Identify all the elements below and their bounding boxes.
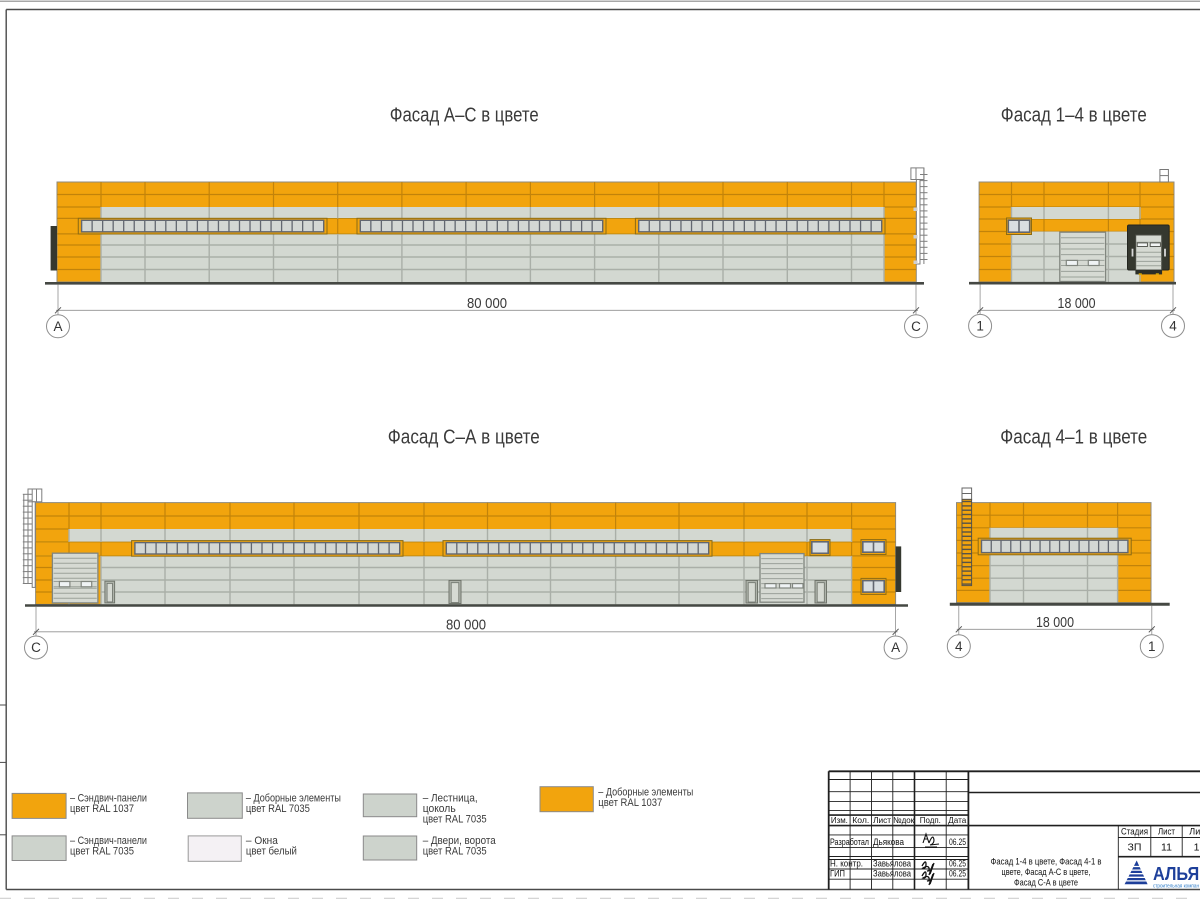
svg-text:цвет RAL 1037: цвет RAL 1037	[598, 797, 662, 809]
svg-text:Лис: Лис	[1189, 827, 1200, 837]
svg-text:11: 11	[1161, 842, 1172, 854]
svg-text:АЛЬЯН: АЛЬЯН	[1153, 863, 1200, 884]
svg-text:Подп.: Подп.	[920, 815, 941, 825]
svg-text:Фасад 4–1 в цвете: Фасад 4–1 в цвете	[1000, 426, 1147, 449]
svg-text:Завьялова: Завьялова	[873, 859, 911, 869]
svg-text:18 000: 18 000	[1058, 295, 1096, 312]
svg-text:цвет RAL 7035: цвет RAL 7035	[70, 846, 134, 858]
svg-text:цвет белый: цвет белый	[246, 846, 297, 858]
svg-text:Н. контр.: Н. контр.	[830, 859, 863, 869]
svg-text:1: 1	[976, 319, 984, 334]
svg-text:Кол.: Кол.	[852, 815, 869, 825]
svg-text:Фасад С-А в цвете: Фасад С-А в цвете	[1014, 877, 1078, 888]
svg-text:цвет RAL 1037: цвет RAL 1037	[70, 803, 134, 815]
svg-text:С: С	[911, 319, 921, 334]
svg-text:Фасад 1-4 в цвете, Фасад 4-1 в: Фасад 1-4 в цвете, Фасад 4-1 в	[991, 856, 1102, 867]
svg-text:ЗП: ЗП	[1128, 842, 1142, 854]
svg-text:Фасад А–С в цвете: Фасад А–С в цвете	[390, 104, 539, 127]
svg-text:4: 4	[955, 639, 963, 654]
svg-text:цвет RAL 7035: цвет RAL 7035	[423, 846, 487, 858]
svg-text:06.25: 06.25	[949, 837, 966, 847]
svg-text:18 000: 18 000	[1036, 614, 1074, 631]
svg-text:Фасад 1–4 в цвете: Фасад 1–4 в цвете	[1001, 104, 1147, 127]
svg-text:А: А	[53, 319, 62, 334]
svg-text:№док: №док	[893, 815, 914, 825]
svg-text:А: А	[891, 640, 900, 655]
svg-text:Дата: Дата	[948, 815, 966, 825]
svg-text:1: 1	[1194, 842, 1200, 854]
svg-text:Стадия: Стадия	[1121, 827, 1148, 837]
svg-text:цвете, Фасад А-С в цвете,: цвете, Фасад А-С в цвете,	[1002, 866, 1091, 877]
svg-text:цвет RAL 7035: цвет RAL 7035	[423, 814, 487, 826]
svg-text:строительная компан: строительная компан	[1153, 884, 1199, 890]
svg-text:С: С	[31, 640, 41, 655]
svg-text:Завьялова: Завьялова	[873, 869, 911, 879]
svg-text:Изм.: Изм.	[831, 815, 848, 825]
svg-text:Фасад С–А в цвете: Фасад С–А в цвете	[388, 426, 540, 449]
svg-text:1: 1	[1148, 639, 1156, 654]
svg-text:цвет RAL 7035: цвет RAL 7035	[246, 803, 310, 815]
svg-text:Дьякова: Дьякова	[873, 837, 904, 847]
svg-text:4: 4	[1169, 319, 1177, 334]
svg-text:80 000: 80 000	[467, 295, 507, 312]
svg-text:80 000: 80 000	[446, 616, 486, 633]
svg-text:Разработал: Разработал	[830, 837, 869, 847]
svg-text:ГИП: ГИП	[830, 869, 845, 879]
svg-text:Лист: Лист	[1158, 827, 1175, 837]
svg-text:06.25: 06.25	[949, 859, 966, 869]
svg-text:06.25: 06.25	[949, 869, 966, 879]
svg-text:Лист: Лист	[873, 815, 891, 825]
